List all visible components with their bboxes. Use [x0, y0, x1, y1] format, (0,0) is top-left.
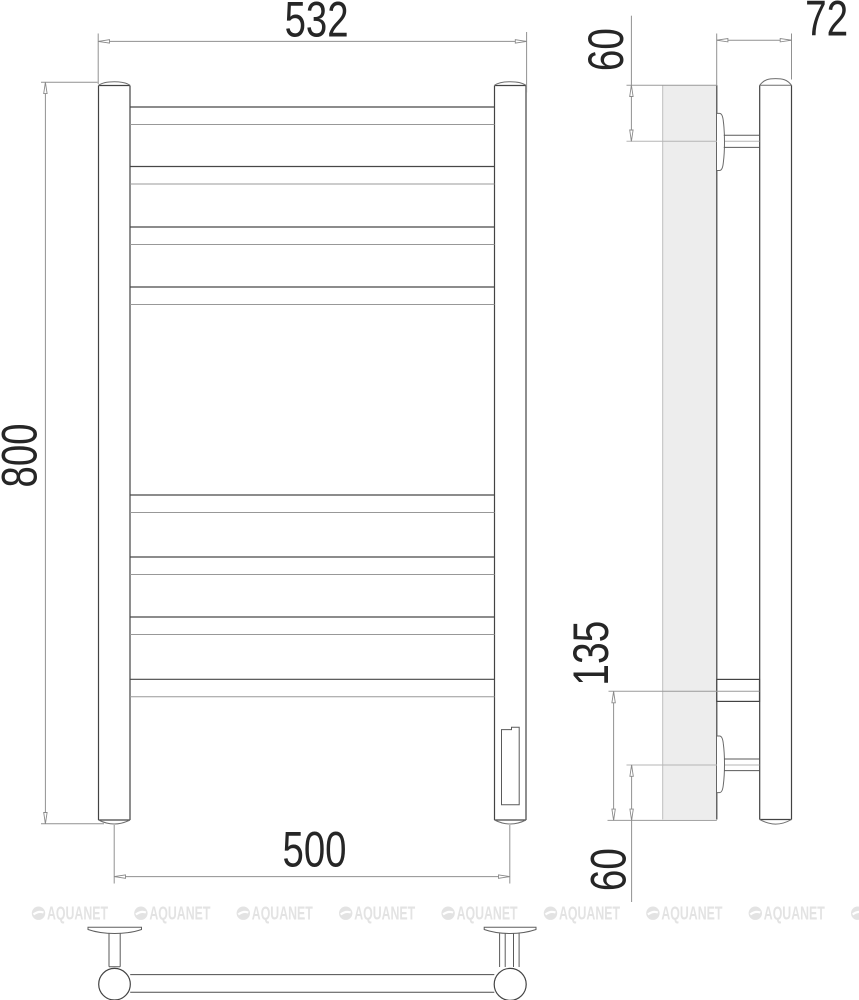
svg-text:60: 60 [578, 28, 634, 71]
svg-text:800: 800 [0, 424, 47, 488]
svg-text:AQUANET: AQUANET [559, 903, 620, 923]
svg-text:135: 135 [563, 621, 619, 686]
svg-text:AQUANET: AQUANET [457, 903, 518, 923]
svg-text:72: 72 [805, 0, 848, 47]
svg-text:532: 532 [285, 0, 349, 47]
svg-text:AQUANET: AQUANET [764, 903, 825, 923]
svg-text:AQUANET: AQUANET [149, 903, 210, 923]
svg-text:AQUANET: AQUANET [354, 903, 415, 923]
svg-text:60: 60 [581, 848, 637, 891]
svg-text:AQUANET: AQUANET [47, 903, 108, 923]
svg-text:AQUANET: AQUANET [252, 903, 313, 923]
svg-text:500: 500 [283, 822, 347, 878]
svg-text:AQUANET: AQUANET [661, 903, 722, 923]
